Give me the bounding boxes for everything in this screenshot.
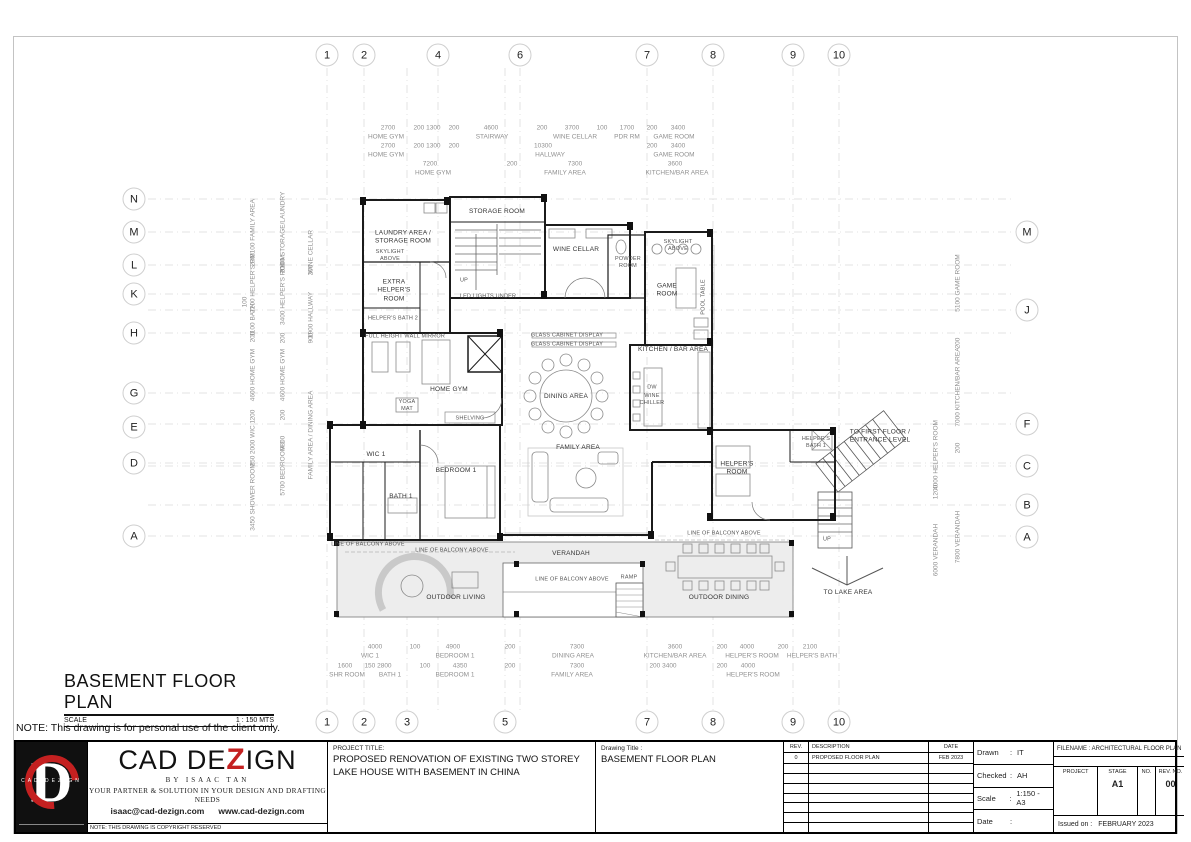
rev-number: 0 xyxy=(784,753,809,763)
room-label: OUTDOOR DINING xyxy=(689,594,750,602)
room-label: LINE OF BALCONY ABOVE xyxy=(331,541,404,548)
dimension-text: GAME ROOM xyxy=(653,134,694,141)
dimension-text: 3600 xyxy=(668,644,682,651)
dimension-text: 7800 VERANDAH xyxy=(955,511,962,563)
lake-arrow xyxy=(812,556,883,585)
drawing-sheet: 1 2 4 6 7 8 9 10 1 2 3 5 7 8 9 10 N M L … xyxy=(0,0,1191,842)
meta-cell: Drawn : IT Checked : AH Scale : 1:150 - … xyxy=(974,742,1054,832)
meta-value: AH xyxy=(1017,771,1027,780)
meta-colon: : xyxy=(1009,794,1016,803)
dimension-text: HALLWAY xyxy=(535,152,565,159)
room-label: EXTRA HELPER'S ROOM xyxy=(377,278,410,303)
room-label: POWDER ROOM xyxy=(615,256,641,270)
rev-header: DATE xyxy=(929,742,973,752)
grid-bubble-top: 9 xyxy=(782,44,805,67)
dimension-text: 4000 xyxy=(741,663,755,670)
dimension-text: 200 xyxy=(449,143,460,150)
dimension-text: FAMILY AREA xyxy=(544,170,586,177)
room-label: WINE CHILLER xyxy=(640,393,665,407)
grid-bubble-left: E xyxy=(123,416,146,439)
dimension-text: 10300 xyxy=(534,143,552,150)
room-label: HELPER'S BATH 1 xyxy=(802,436,830,450)
grid-bubble-bottom: 5 xyxy=(494,711,517,734)
dimension-text: 4600 xyxy=(484,125,498,132)
room-label: YOGA MAT xyxy=(399,399,416,413)
client-note: NOTE: This drawing is for personal use o… xyxy=(16,722,280,734)
grid-bubble-left: H xyxy=(123,322,146,345)
brand-wordmark: CAD DEZIGN xyxy=(88,745,327,775)
drawing-title-text: BASEMENT FLOOR PLAN xyxy=(601,754,778,767)
room-label: HOME GYM xyxy=(430,386,468,394)
revision-header-row: REV. DESCRIPTION DATE xyxy=(784,742,973,753)
room-label: DINING AREA xyxy=(544,393,588,401)
dimension-text: 200 xyxy=(955,443,962,454)
dimension-text: 3400 xyxy=(671,125,685,132)
project-title-cell: PROJECT TITLE: PROPOSED RENOVATION OF EX… xyxy=(328,742,596,832)
grid-bubble-bottom: 10 xyxy=(828,711,851,734)
grid-bubble-left: G xyxy=(123,382,146,405)
dimension-text: 3100 FAMILY AREA xyxy=(250,199,257,257)
room-label: GAME ROOM xyxy=(656,283,677,300)
grid-bubble-top: 4 xyxy=(427,44,450,67)
drawing-title-label: Drawing Title : xyxy=(601,745,778,752)
meta-label: Drawn xyxy=(977,748,1010,757)
brand-post: IGN xyxy=(246,745,297,775)
grid-bubble-right: F xyxy=(1016,413,1039,436)
revision-row-empty xyxy=(784,823,973,832)
dimension-text: 2100 xyxy=(803,644,817,651)
revision-row: 0 PROPOSED FLOOR PLAN FEB 2023 xyxy=(784,753,973,764)
room-label: LINE OF BALCONY ABOVE xyxy=(415,547,488,554)
col-header: NO. xyxy=(1142,769,1152,775)
meta-value: 1:150 - A3 xyxy=(1016,789,1050,807)
room-label: FAMILY AREA xyxy=(556,444,600,452)
issued-row: Issued on : FEBRUARY 2023 xyxy=(1054,815,1184,832)
room-label: FULL HEIGHT WALL MIRROR xyxy=(365,333,445,340)
room-label: HELPER'S BATH 2 xyxy=(368,315,418,322)
dimension-text: 2000 WIC 1 xyxy=(250,420,257,454)
dimension-text: 100 xyxy=(597,125,608,132)
room-label: BATH 1 xyxy=(389,493,412,501)
rev-description: PROPOSED FLOOR PLAN xyxy=(809,753,929,763)
room-label: WINE CELLAR xyxy=(553,246,599,254)
dimension-text: 5700 BEDROOM 1 xyxy=(280,440,287,495)
dimension-text: 5100 GAME ROOM xyxy=(955,254,962,311)
grid-bubble-bottom: 7 xyxy=(636,711,659,734)
meta-colon: : xyxy=(1010,771,1017,780)
grid-bubble-left: A xyxy=(123,525,146,548)
brand-email: isaac@cad-dezign.com xyxy=(111,806,205,816)
room-label: RAMP xyxy=(621,574,638,581)
grid-bubble-top: 2 xyxy=(353,44,376,67)
dimension-text: HELPER'S ROOM xyxy=(725,653,779,660)
dimension-text: 200 xyxy=(280,410,287,421)
dimension-text: 3600 xyxy=(668,161,682,168)
scale-row: Scale : 1:150 - A3 xyxy=(974,788,1053,811)
grid-bubble-bottom: 9 xyxy=(782,711,805,734)
dimension-text: BEDROOM 1 xyxy=(435,672,474,679)
rev-date: FEB 2023 xyxy=(929,753,973,763)
dimension-text: 200 1300 xyxy=(413,143,440,150)
dimension-text: 200 xyxy=(537,125,548,132)
dimension-text: 7300 xyxy=(570,644,584,651)
dimension-text: 3400 HELPER'S ROOM xyxy=(280,255,287,325)
rev-header: REV. xyxy=(784,742,809,752)
room-label: VERANDAH xyxy=(552,550,590,558)
grid-bubble-bottom: 3 xyxy=(396,711,419,734)
brand-tagline: YOUR PARTNER & SOLUTION IN YOUR DESIGN A… xyxy=(88,786,327,804)
brand-cell: CAD DEZIGN BY ISAAC TAN YOUR PARTNER & S… xyxy=(88,742,328,832)
title-block: D CAD DEZIGN CAD DEZIGN BY ISAAC TAN YOU… xyxy=(14,740,1177,834)
dimension-text: 4000 xyxy=(740,644,754,651)
dimension-text: STAIRWAY xyxy=(476,134,509,141)
brand-pre: CAD DE xyxy=(118,745,226,775)
grid-bubble-left: N xyxy=(123,188,146,211)
brand-byline: BY ISAAC TAN xyxy=(88,776,327,784)
grid-bubble-left: M xyxy=(123,221,146,244)
dimension-text: PDR RM xyxy=(614,134,640,141)
dimension-text: 3450 SHOWER ROOM xyxy=(250,463,257,531)
room-label: GLASS CABINET DISPLAY xyxy=(531,332,603,339)
dimension-text: 200 1300 xyxy=(413,125,440,132)
grid-bubble-right: A xyxy=(1016,526,1039,549)
room-label: BEDROOM 1 xyxy=(436,467,477,475)
copyright-note: NOTE: THIS DRAWING IS COPYRIGHT RESERVED xyxy=(88,823,327,832)
dimension-text: KITCHEN/BAR AREA xyxy=(644,653,707,660)
dimension-text: 100 xyxy=(410,644,421,651)
file-info-cell: FILENAME : ARCHITECTURAL FLOOR PLAN PROJ… xyxy=(1054,742,1184,832)
rev-no-col: REV. NO. 00 xyxy=(1156,767,1184,815)
dimension-text: 3400 xyxy=(671,143,685,150)
grid-bubble-left: D xyxy=(123,452,146,475)
dimension-text: GAME ROOM xyxy=(653,152,694,159)
dimension-text: BEDROOM 1 xyxy=(435,653,474,660)
dimension-text: 200 xyxy=(280,333,287,344)
dimension-text: 200 xyxy=(250,410,257,421)
room-label: POOL TABLE xyxy=(700,279,707,315)
dimension-text: 200 xyxy=(250,332,257,343)
dimension-text: DINING AREA xyxy=(552,653,594,660)
revision-row-empty xyxy=(784,784,973,794)
dimension-text: BATH 1 xyxy=(379,672,401,679)
room-label: SHELVING xyxy=(455,415,484,422)
dimension-text: 7200 xyxy=(423,161,437,168)
dimension-text: 4350 xyxy=(453,663,467,670)
drawing-title-cell: Drawing Title : BASEMENT FLOOR PLAN xyxy=(596,742,784,832)
room-label: TO FIRST FLOOR / ENTRANCE LEVEL xyxy=(850,429,911,446)
room-label: LAUNDRY AREA / STORAGE ROOM xyxy=(375,230,431,247)
room-label: UP xyxy=(460,277,468,284)
revision-row-empty xyxy=(784,794,973,804)
dimension-text: WINE CELLAR xyxy=(553,134,597,141)
logo-baseline xyxy=(19,824,84,828)
revision-row-empty xyxy=(784,774,973,784)
col-header: PROJECT xyxy=(1063,769,1089,775)
rev-no-value: 00 xyxy=(1165,779,1175,789)
dimension-text: 200 xyxy=(717,663,728,670)
dimension-text: 200 xyxy=(449,125,460,132)
stairs xyxy=(455,224,906,548)
revision-row-empty xyxy=(784,764,973,774)
grid-bubble-top: 7 xyxy=(636,44,659,67)
file-spacer xyxy=(1054,757,1184,767)
dimension-text: 4600 HOME GYM xyxy=(280,349,287,401)
dimension-text: 2700 xyxy=(381,143,395,150)
dimension-text: 4000 xyxy=(368,644,382,651)
dimension-text: 1900 HALLWAY xyxy=(308,292,315,338)
dimension-text: 7300 xyxy=(568,161,582,168)
project-title-label: PROJECT TITLE: xyxy=(333,745,590,752)
dimension-text: HOME GYM xyxy=(368,134,404,141)
grid-bubble-left: K xyxy=(123,283,146,306)
dimension-text: 1700 xyxy=(620,125,634,132)
room-label: TO LAKE AREA xyxy=(824,589,873,597)
stage-value: A1 xyxy=(1112,779,1124,789)
room-label: WIC 1 xyxy=(366,451,385,459)
col-header: STAGE xyxy=(1108,769,1126,775)
project-title-text: PROPOSED RENOVATION OF EXISTING TWO STOR… xyxy=(333,754,590,780)
col-header: REV. NO. xyxy=(1159,769,1183,775)
room-label: UP xyxy=(823,536,831,543)
drawn-by-row: Drawn : IT xyxy=(974,742,1053,765)
room-label: LINE OF BALCONY ABOVE xyxy=(687,530,760,537)
dimension-text: 1200 xyxy=(933,485,940,499)
dimension-text: KITCHEN/BAR AREA xyxy=(646,170,709,177)
grid-bubble-right: B xyxy=(1016,494,1039,517)
meta-colon: : xyxy=(1010,817,1017,826)
dimension-text: 200 xyxy=(507,161,518,168)
brand-z: Z xyxy=(226,743,245,776)
revision-row-empty xyxy=(784,803,973,813)
grid-bubble-top: 8 xyxy=(702,44,725,67)
dimension-text: 200 3400 xyxy=(649,663,676,670)
plan-title-text: BASEMENT FLOOR PLAN xyxy=(64,671,274,716)
project-col: PROJECT xyxy=(1054,767,1098,815)
dimension-text: 2700 xyxy=(381,125,395,132)
grid-bubble-right: M xyxy=(1016,221,1039,244)
room-label: STORAGE ROOM xyxy=(469,208,525,216)
dimension-text: 100 xyxy=(242,297,249,308)
meta-label: Checked xyxy=(977,771,1010,780)
grid-bubble-right: C xyxy=(1016,455,1039,478)
dimension-text: 200 xyxy=(717,644,728,651)
dimension-text: 900 xyxy=(308,333,315,344)
room-label: SKYLIGHT ABOVE xyxy=(376,249,405,263)
meta-colon: : xyxy=(1010,748,1017,757)
grid-bubble-bottom: 1 xyxy=(316,711,339,734)
dimension-text: HELPER'S ROOM xyxy=(726,672,780,679)
dimension-text: 4000 HELPER'S ROOM xyxy=(933,420,940,490)
dimension-text: 4600 HOME GYM xyxy=(250,349,257,401)
dimension-text: 150 2800 xyxy=(364,663,391,670)
dimension-text: 200 xyxy=(778,644,789,651)
company-logo: D CAD DEZIGN xyxy=(16,742,88,832)
date-row: Date : xyxy=(974,810,1053,832)
dimension-text: 1600 xyxy=(338,663,352,670)
room-label: SKYLIGHT ABOVE xyxy=(664,239,693,253)
logo-band-text: CAD DEZIGN xyxy=(18,778,85,784)
room-label: HELPER'S ROOM xyxy=(720,461,753,478)
dimension-text: 6000 VERANDAH xyxy=(933,524,940,576)
meta-label: Date xyxy=(977,817,1010,826)
dimension-text: 7300 xyxy=(570,663,584,670)
dimension-text: 200 xyxy=(505,644,516,651)
no-col: NO. xyxy=(1138,767,1157,815)
dimension-text: 100 xyxy=(420,663,431,670)
room-label: GLASS CABINET DISPLAY xyxy=(531,341,603,348)
dimension-text: HELPER'S BATH xyxy=(787,653,837,660)
dimension-text: HOME GYM xyxy=(368,152,404,159)
room-label: KITCHEN / BAR AREA xyxy=(638,346,708,354)
checked-by-row: Checked : AH xyxy=(974,765,1053,788)
grid-bubble-top: 6 xyxy=(509,44,532,67)
grid-bubble-bottom: 8 xyxy=(702,711,725,734)
issued-date: FEBRUARY 2023 xyxy=(1098,821,1153,828)
meta-label: Scale xyxy=(977,794,1009,803)
stage-col: STAGE A1 xyxy=(1098,767,1137,815)
revision-table: REV. DESCRIPTION DATE 0 PROPOSED FLOOR P… xyxy=(784,742,974,832)
dimension-text: 200 xyxy=(505,663,516,670)
dimension-text: 3700 xyxy=(565,125,579,132)
grid-bubble-top: 10 xyxy=(828,44,851,67)
brand-website: www.cad-dezign.com xyxy=(218,806,304,816)
dimension-text: 200 xyxy=(308,265,315,276)
meta-value: IT xyxy=(1017,748,1024,757)
dimension-text: 200 xyxy=(647,143,658,150)
dimension-text: SHR ROOM xyxy=(329,672,365,679)
revision-row-empty xyxy=(784,813,973,823)
room-label: LINE OF BALCONY ABOVE xyxy=(535,576,608,583)
room-label: DW xyxy=(647,384,657,391)
grid-bubble-left: L xyxy=(123,254,146,277)
dimension-text: FAMILY AREA / DINING AREA xyxy=(308,391,315,480)
dimension-text: HOME GYM xyxy=(415,170,451,177)
dimension-text: 4900 xyxy=(446,644,460,651)
room-label: LED LIGHTS UNDER xyxy=(460,293,516,300)
dimension-text: WIC 1 xyxy=(361,653,379,660)
grid-bubble-bottom: 2 xyxy=(353,711,376,734)
plan-heading: BASEMENT FLOOR PLAN SCALE 1 : 150 MTS xyxy=(64,671,274,727)
grid-bubble-top: 1 xyxy=(316,44,339,67)
dimension-text: FAMILY AREA xyxy=(551,672,593,679)
dimension-text: 7000 KITCHEN/BAR AREA xyxy=(955,347,962,426)
room-label: OUTDOOR LIVING xyxy=(426,594,485,602)
dimension-text: 200 xyxy=(647,125,658,132)
filename-row: FILENAME : ARCHITECTURAL FLOOR PLAN xyxy=(1054,742,1184,757)
rev-header: DESCRIPTION xyxy=(809,742,929,752)
grid-bubble-right: J xyxy=(1016,299,1039,322)
issued-label: Issued on : xyxy=(1058,821,1092,828)
